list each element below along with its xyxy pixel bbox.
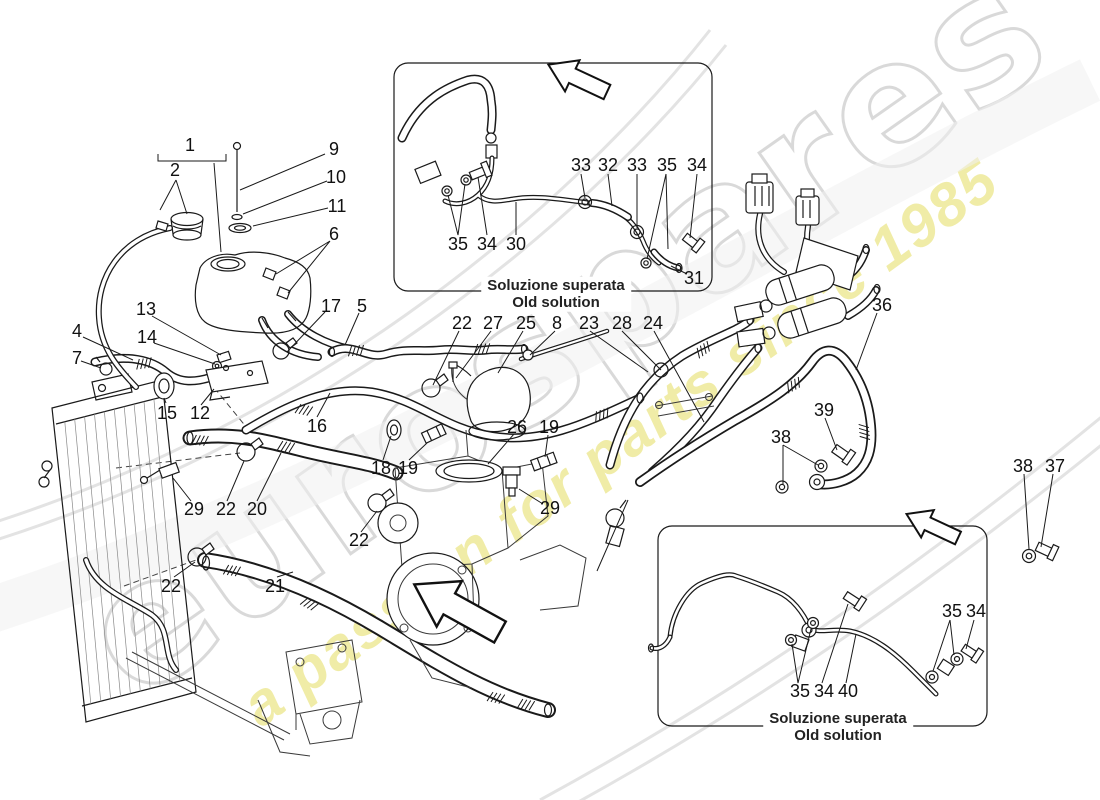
parts-diagram-page: eurospares a passion for parts since 198…	[0, 0, 1100, 800]
diagram-line-art	[0, 0, 1100, 800]
caption-english: Old solution	[769, 727, 907, 744]
radiator-lower-mount	[126, 640, 362, 756]
caption-italian: Soluzione superata	[769, 710, 907, 727]
inset-top-caption: Soluzione superata Old solution	[481, 277, 631, 312]
banjo-fittings	[776, 441, 1059, 562]
caption-english: Old solution	[487, 294, 625, 311]
inset-bottom-old-solution	[649, 500, 988, 726]
inset-bottom-caption: Soluzione superata Old solution	[763, 710, 913, 745]
caption-italian: Soluzione superata	[487, 277, 625, 294]
